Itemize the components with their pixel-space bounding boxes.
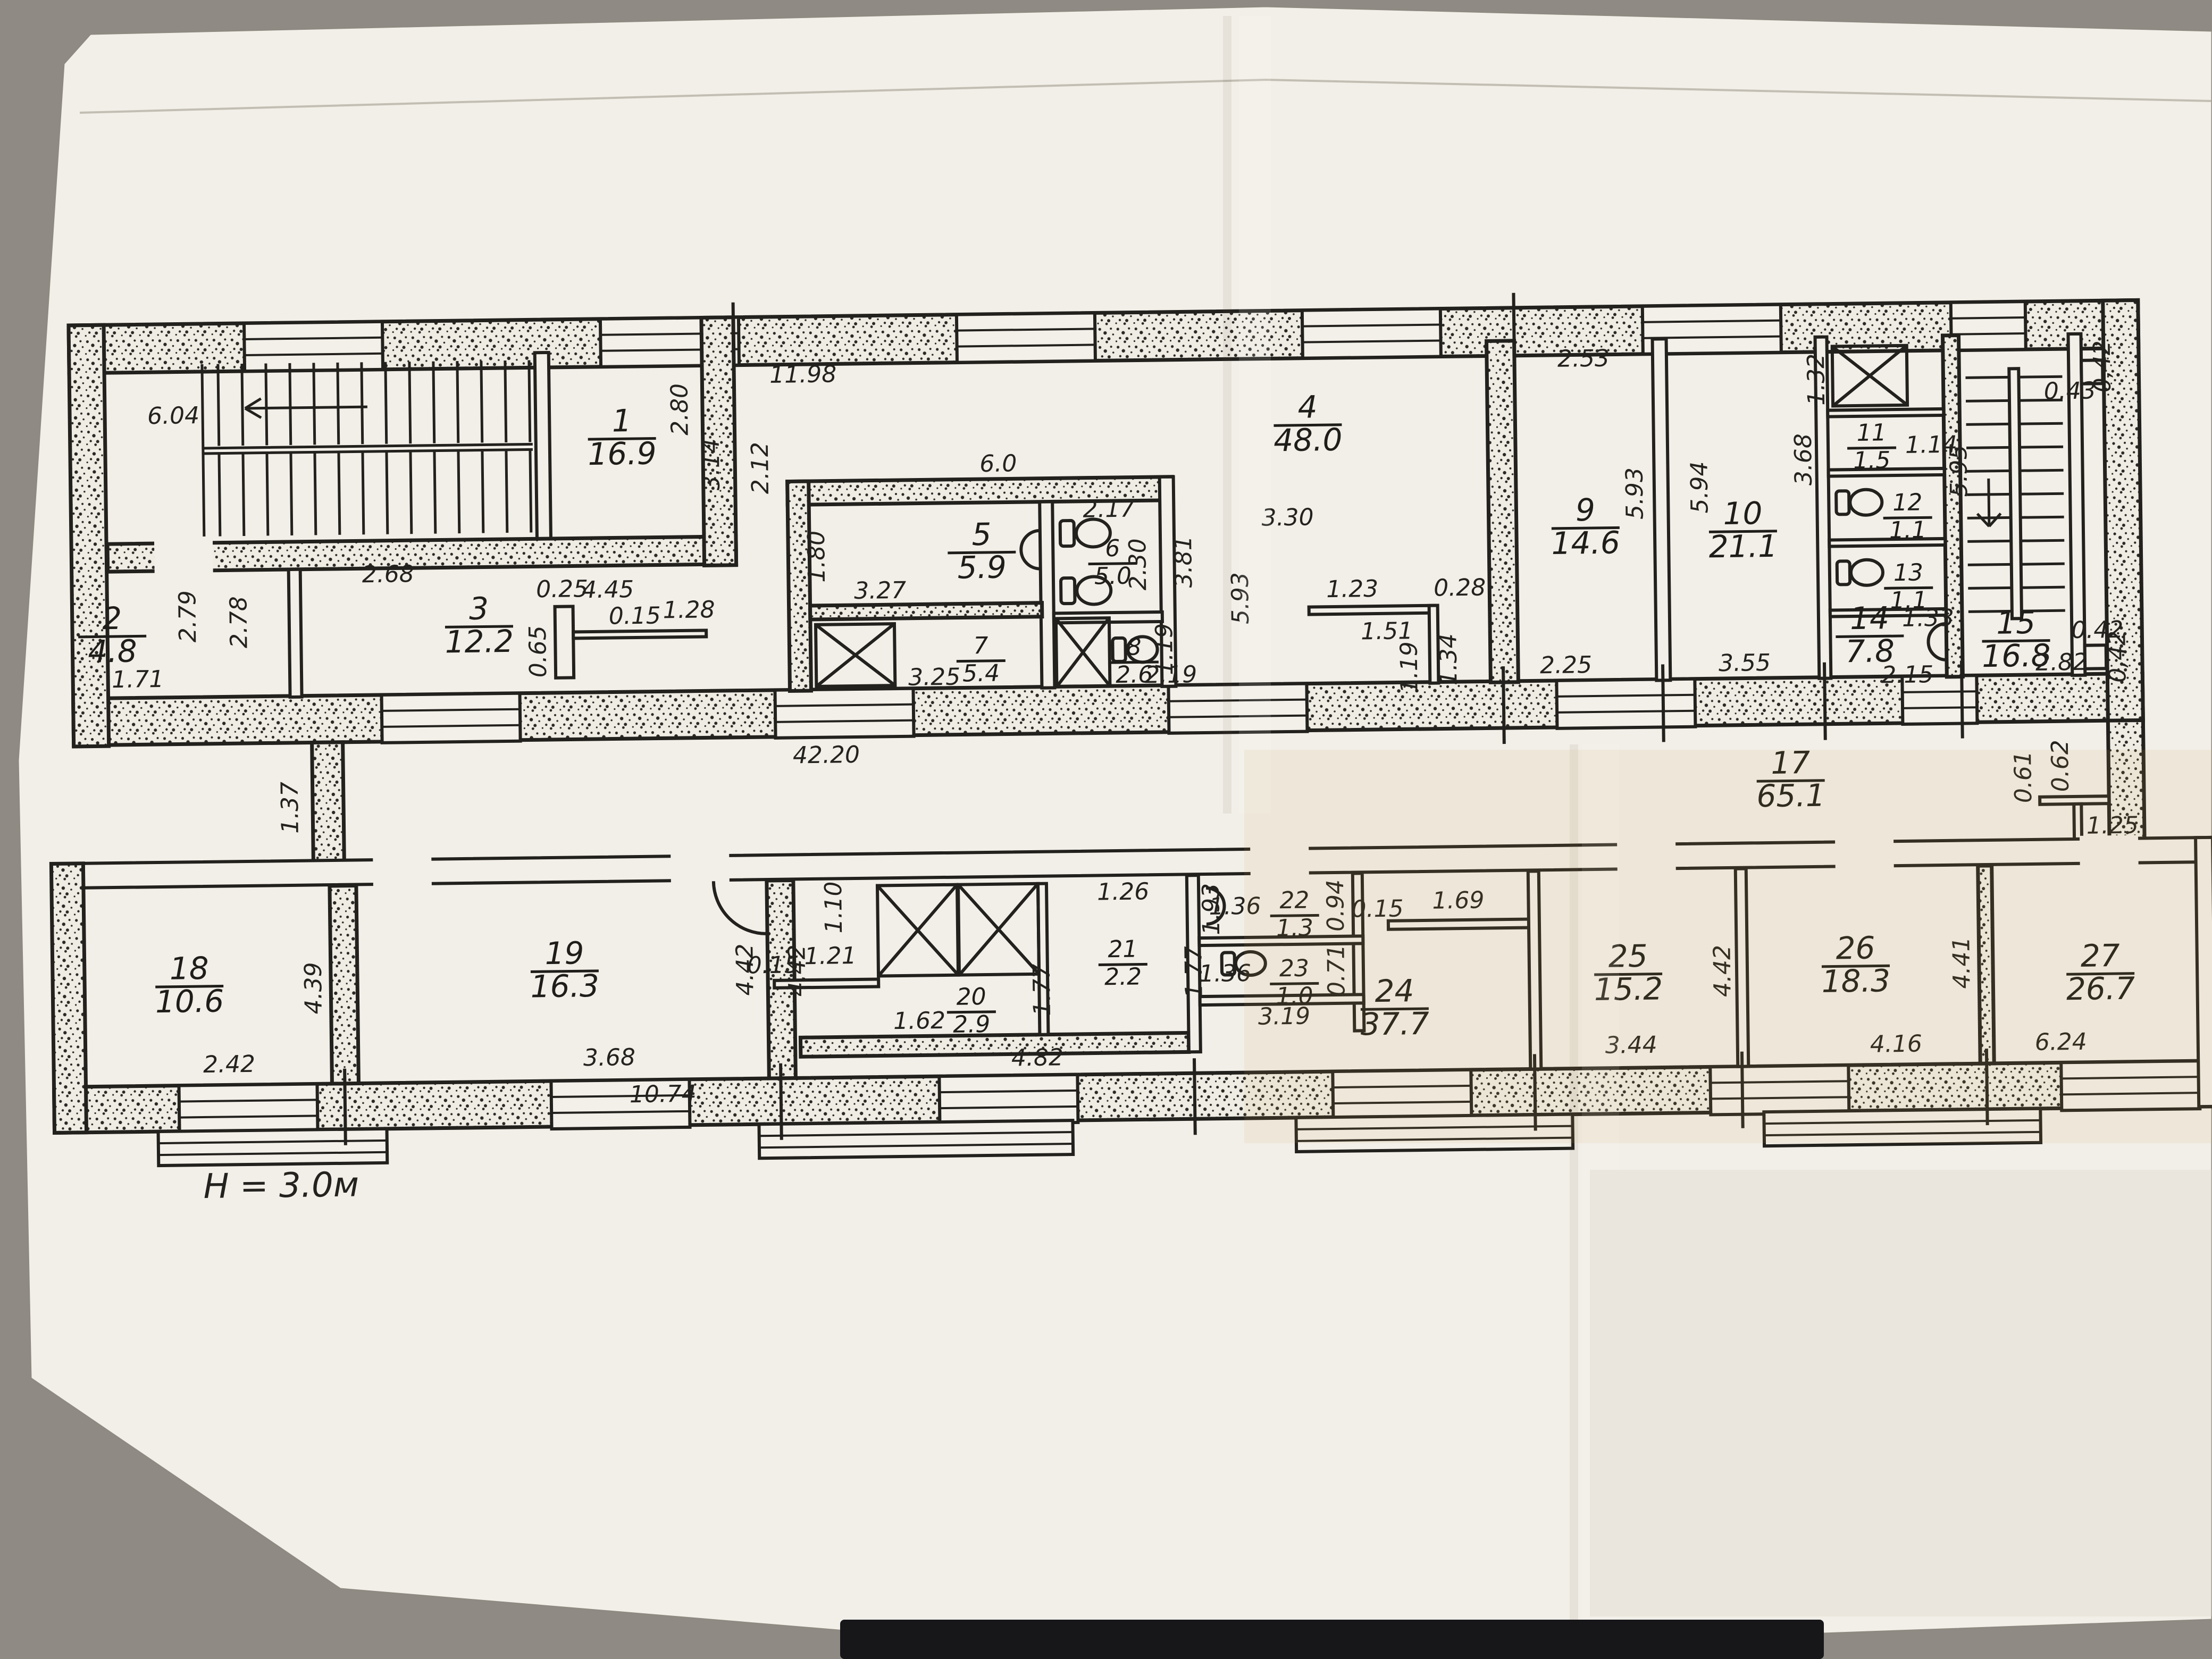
wall-room18-room19: [330, 885, 359, 1084]
dim-label: 2.12: [747, 442, 774, 495]
dim-label: 42.20: [793, 741, 860, 769]
height-note: H = 3.0м: [203, 1165, 359, 1206]
dim-label: 1.33: [1902, 605, 1955, 632]
room-area: 2.9: [953, 1011, 991, 1038]
room-number: 13: [1893, 559, 1924, 586]
room-area: 2.2: [1104, 963, 1142, 991]
dim-label: 1.21: [804, 942, 857, 970]
room-number: 21: [1108, 936, 1138, 963]
toilet-block-west-wall: [787, 481, 811, 691]
pilaster: [2085, 645, 2107, 668]
dim-label: 2.15: [1881, 661, 1934, 689]
door-opening: [373, 856, 432, 887]
window: [1951, 301, 2026, 350]
door-opening: [154, 540, 213, 574]
dim-label: 0.15: [747, 951, 800, 979]
dim-label: 1.19: [1395, 641, 1423, 694]
window: [775, 689, 914, 738]
dim-label: 3.68: [1790, 433, 1817, 486]
room-number: 1: [611, 403, 632, 439]
dim-label: 3.27: [854, 577, 907, 605]
dim-label: 5.95: [1945, 445, 1973, 497]
room-area: 12.2: [445, 623, 514, 660]
dim-label: 5.93: [1621, 467, 1648, 520]
dim-label: 1.71: [112, 666, 164, 693]
room-number: 18: [169, 950, 209, 987]
dim-label: 4.39: [300, 962, 328, 1015]
room-number: 20: [956, 983, 986, 1011]
dim-label: 1.26: [1097, 878, 1150, 906]
porch: [759, 1120, 1073, 1158]
dim-label: 2.78: [225, 596, 253, 649]
dim-label: 3.55: [1719, 649, 1771, 677]
room-area: 10.6: [155, 983, 224, 1020]
dim-label: 0,42: [2104, 631, 2131, 683]
dim-label: 1.10: [820, 881, 848, 934]
dim-label: 0.28: [1434, 574, 1486, 601]
room-area: 16.3: [530, 968, 599, 1005]
dim-label: 4.45: [582, 576, 634, 604]
dim-label: 1.80: [803, 531, 831, 583]
dim-label: 1.28: [663, 596, 715, 624]
room-area: 5.9: [957, 549, 1007, 586]
dim-label: 1.36: [1199, 960, 1252, 987]
dim-label: 5.94: [1686, 461, 1713, 514]
dim-label: 4.82: [1011, 1044, 1064, 1071]
room-area: 5.4: [962, 660, 1000, 688]
dim-label: 2.30: [1124, 538, 1152, 591]
dim-label: 2.79: [174, 590, 202, 643]
window: [939, 1075, 1078, 1124]
window: [957, 313, 1095, 362]
dim-label: 6.0: [979, 450, 1017, 477]
partition-stub: [573, 630, 706, 638]
paper-crease: [1223, 16, 1231, 814]
room-number: 10: [1723, 495, 1763, 532]
room-number: 3: [469, 590, 489, 626]
dim-label: 0.15: [608, 602, 661, 630]
wall-stair-room1: [535, 353, 551, 540]
room-area: 14.6: [1551, 524, 1620, 562]
dim-label: 1.37: [276, 782, 304, 834]
pilaster: [555, 606, 574, 677]
lower-west-wall: [51, 864, 86, 1133]
dim-label: 3.81: [1170, 535, 1197, 588]
dim-label: 2.68: [362, 560, 414, 588]
dim-label: 2.17: [1083, 496, 1135, 523]
dim-label: 1.62: [893, 1007, 946, 1035]
room-number: 2: [102, 600, 122, 636]
dim-label: 1.51: [1361, 617, 1413, 645]
room-number: 12: [1892, 489, 1923, 516]
dim-label: 3.14: [698, 438, 725, 491]
wall-room5-room7: [810, 603, 1042, 619]
dim-label: 2.80: [666, 383, 693, 436]
wall-room9-room10: [1653, 339, 1671, 680]
dim-label: 3.25: [908, 664, 961, 691]
room-area: 48.0: [1273, 422, 1343, 459]
table-edge-strip: [840, 1620, 1824, 1659]
room-number: 6: [1105, 535, 1120, 562]
room-number: 11: [1856, 419, 1887, 447]
window: [179, 1084, 317, 1133]
room-area: 21.1: [1708, 528, 1778, 565]
dim-label: 2.82: [2035, 649, 2088, 676]
room-number: 5: [971, 516, 992, 552]
block-south-wall: [800, 1033, 1188, 1057]
dim-label: 0.43: [2044, 377, 2097, 405]
paper-crease: [1239, 16, 1271, 814]
room-area: 1.1: [1889, 516, 1927, 544]
window: [1168, 684, 1307, 733]
room-number: 9: [1576, 492, 1596, 528]
window: [1302, 308, 1441, 358]
dim-label: 1.77: [1028, 963, 1056, 1016]
dim-label: 0.25: [536, 575, 589, 603]
dim-label: 2.25: [1540, 651, 1593, 679]
partition-stub: [1309, 606, 1435, 615]
room-number: 14: [1850, 600, 1890, 636]
dim-label: 1.93: [1197, 883, 1225, 936]
dim-label: 1.34: [1435, 633, 1462, 686]
dim-label: 3.68: [583, 1044, 636, 1071]
corridor-west-wall: [312, 742, 345, 862]
upper-west-wall: [69, 325, 109, 747]
room-number: 15: [1996, 605, 2036, 641]
room-area: 16.9: [588, 435, 657, 473]
dim-label: 2.42: [203, 1051, 256, 1078]
dim-label: 11.98: [769, 361, 837, 389]
wall-room2-room3: [289, 569, 302, 697]
door-opening: [671, 852, 730, 884]
dim-label: 2.53: [1557, 345, 1610, 373]
porch: [158, 1129, 388, 1166]
room-number: 19: [544, 935, 584, 971]
room-number: 7: [973, 632, 988, 659]
room-area: 1.5: [1853, 447, 1891, 474]
dim-label: 0.65: [524, 625, 552, 678]
room-area: 4.8: [88, 633, 137, 669]
room-number: 8: [1126, 633, 1142, 660]
paper-warm-tint: [1244, 750, 2212, 1143]
dim-label: 6.04: [147, 402, 200, 430]
dim-label: 0,42: [2089, 340, 2116, 393]
wall-room5-room6: [1040, 501, 1054, 688]
paper-shade: [1590, 1170, 2212, 1616]
room-number: 4: [1297, 389, 1318, 425]
wall-room12-room13: [1829, 539, 1945, 547]
window: [382, 693, 521, 743]
dim-label: 1.19: [1151, 623, 1178, 676]
wall-shaft-room11: [1828, 409, 1943, 417]
dim-label: 10.74: [629, 1080, 697, 1109]
dim-label: 1.32: [1803, 354, 1830, 406]
wall-room4-room9: [1487, 341, 1519, 683]
dim-label: 1.23: [1326, 575, 1379, 603]
photo-of-floor-plan: 116.924.8312.2448.055.965.075.482.6914.6…: [0, 0, 2212, 1659]
window: [1556, 679, 1695, 728]
floor-plan-svg: 116.924.8312.2448.055.965.075.482.6914.6…: [0, 0, 2212, 1659]
